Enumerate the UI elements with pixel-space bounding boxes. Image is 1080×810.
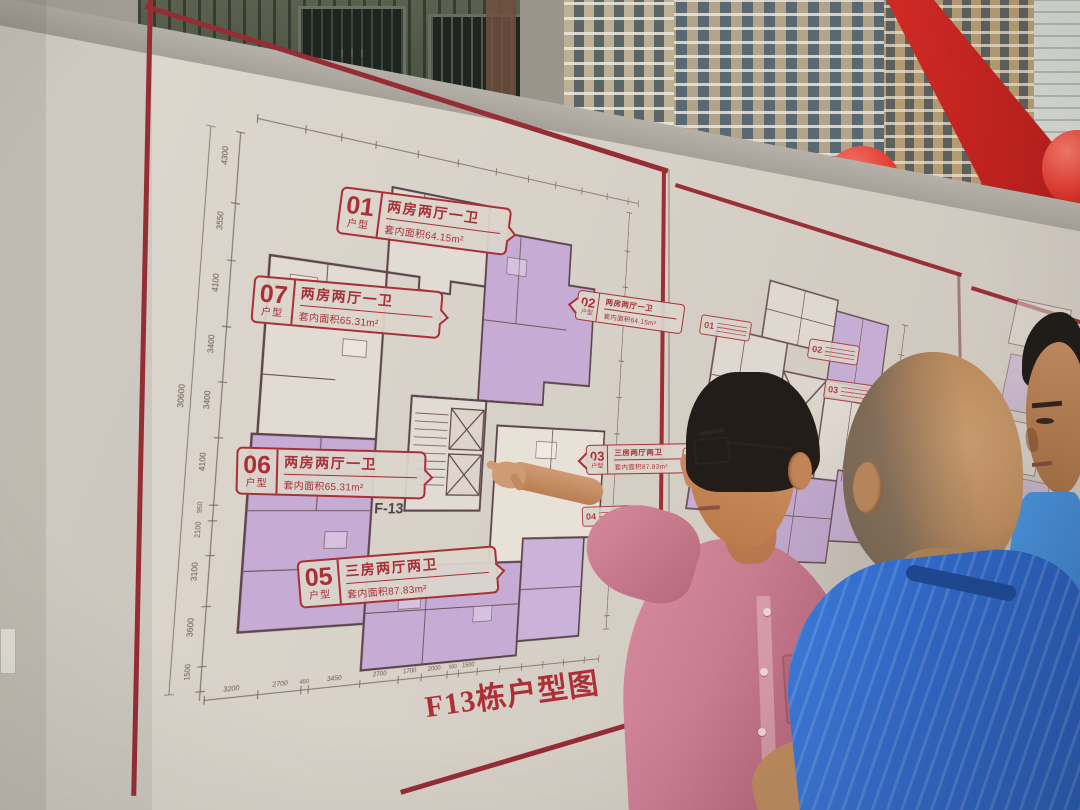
svg-text:1500: 1500 [462, 661, 475, 669]
svg-text:3200: 3200 [223, 684, 240, 693]
man-pointing-button-2 [760, 668, 768, 676]
man-right-eye [1036, 418, 1054, 424]
man-pointing-ear [788, 452, 812, 490]
building-number-label: F-13 [374, 501, 404, 518]
svg-text:4100: 4100 [209, 273, 221, 293]
svg-text:3100: 3100 [188, 562, 200, 581]
unit-07-number: 07户型 [252, 277, 295, 324]
board-left-edge-shade [0, 0, 46, 810]
unit-01-number: 01户型 [338, 188, 383, 237]
wall-tag [0, 628, 16, 674]
svg-text:2100: 2100 [194, 521, 203, 538]
man-pointing-button-1 [763, 608, 771, 616]
svg-text:3450: 3450 [327, 674, 342, 683]
unit-label-06: 06户型 两房两厅一卫套内面积65.31m² [235, 447, 426, 500]
svg-text:1500: 1500 [183, 663, 192, 681]
svg-text:3400: 3400 [205, 334, 217, 354]
floorplan-main: F-13 4300 3550 4100 3400 3400 4100 [148, 85, 642, 726]
svg-text:3550: 3550 [214, 210, 226, 230]
floorplan-main-wrap: F-13 4300 3550 4100 3400 3400 4100 [148, 85, 642, 726]
photo-scene: F-13 4300 3550 4100 3400 3400 4100 [0, 0, 1080, 810]
svg-text:4100: 4100 [196, 452, 208, 471]
svg-text:3400: 3400 [201, 390, 213, 409]
svg-text:450: 450 [299, 679, 309, 686]
svg-text:2700: 2700 [272, 680, 288, 689]
unit-03-number: 03户型 [587, 446, 609, 474]
svg-text:2000: 2000 [428, 665, 442, 673]
svg-text:1700: 1700 [403, 667, 417, 675]
blurred-text [824, 346, 855, 360]
unit-05-number: 05户型 [299, 560, 342, 607]
svg-text:950: 950 [196, 501, 205, 513]
svg-text:3600: 3600 [184, 618, 196, 638]
unit-06-number: 06户型 [237, 449, 278, 494]
svg-text:4300: 4300 [219, 145, 231, 165]
svg-text:2700: 2700 [372, 670, 387, 679]
man-pointing-button-3 [758, 728, 766, 736]
blurred-text [716, 322, 747, 336]
man-bald-ear [853, 462, 883, 514]
svg-text:30600: 30600 [175, 384, 187, 408]
svg-text:900: 900 [449, 664, 457, 671]
